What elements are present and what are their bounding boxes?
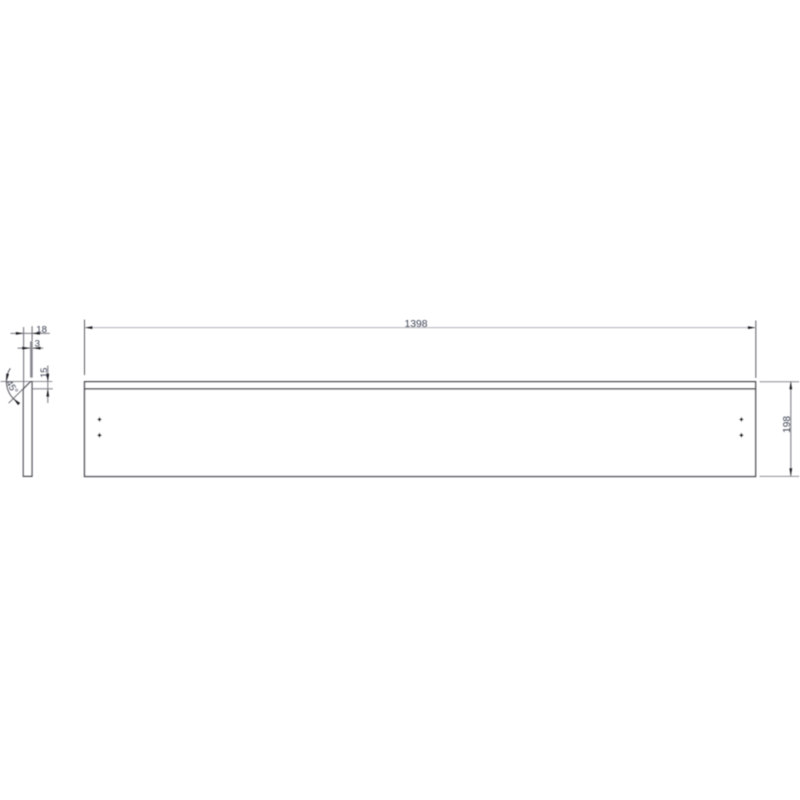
svg-text:15: 15 [39,368,49,378]
svg-text:18: 18 [36,325,47,336]
svg-text:1398: 1398 [404,319,427,330]
svg-text:3: 3 [35,339,40,350]
svg-text:198: 198 [782,416,793,433]
